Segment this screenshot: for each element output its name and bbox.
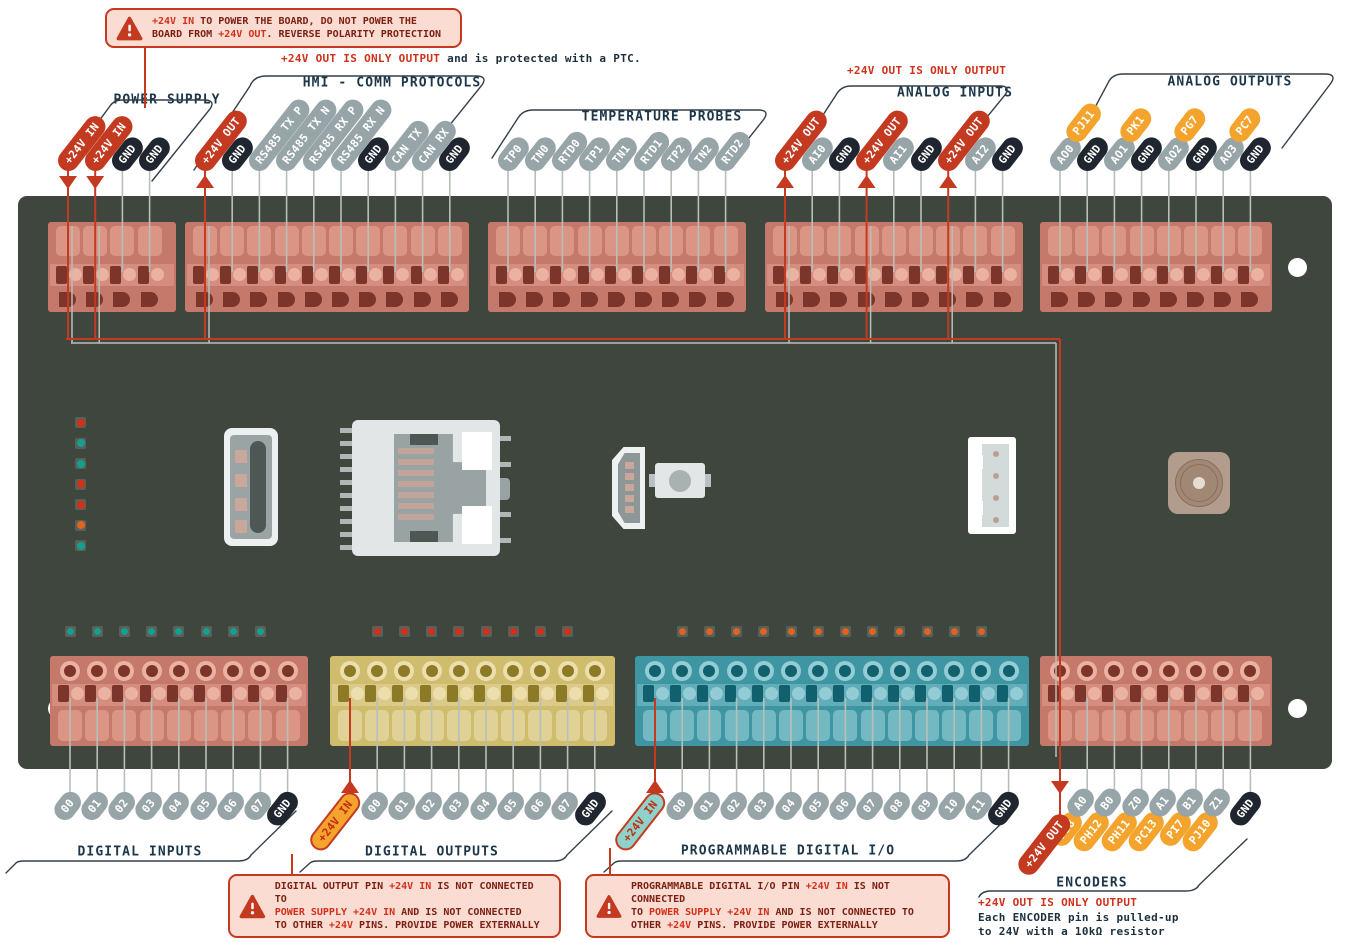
terminal-detail xyxy=(779,710,803,741)
terminal-detail xyxy=(138,226,162,256)
terminal-detail xyxy=(83,266,94,284)
terminal-detail xyxy=(338,685,349,702)
terminal-detail xyxy=(1143,268,1156,281)
terminal-detail xyxy=(112,710,136,741)
group-title: ENCODERS xyxy=(1056,876,1127,891)
terminal-detail xyxy=(969,710,993,741)
pin-label-text: 01 xyxy=(689,787,724,823)
pin-label: 04 xyxy=(159,787,194,823)
io-led xyxy=(453,626,464,637)
terminal-detail xyxy=(1130,226,1154,256)
io-led xyxy=(372,626,383,637)
terminal-detail xyxy=(963,226,987,256)
terminal-detail xyxy=(578,226,602,256)
pin-label-text: 00 xyxy=(357,787,392,823)
terminal-detail xyxy=(151,268,164,281)
io-led xyxy=(562,626,573,637)
terminal-detail xyxy=(501,710,525,741)
terminal-detail xyxy=(496,226,520,256)
terminal-detail xyxy=(991,266,1002,284)
terminal-detail xyxy=(936,226,960,256)
led-dot xyxy=(77,521,85,529)
io-led xyxy=(535,626,546,637)
pin-label: +24V IN xyxy=(611,787,670,854)
terminal-detail xyxy=(420,710,444,741)
terminal-detail xyxy=(1187,292,1204,307)
terminal-detail xyxy=(738,687,751,700)
terminal-detail xyxy=(997,710,1021,741)
terminal-block xyxy=(48,222,176,312)
terminal-detail xyxy=(447,685,458,702)
terminal-detail xyxy=(438,266,449,284)
terminal-detail xyxy=(618,268,631,281)
group-title: TEMPERATURE PROBES xyxy=(582,110,743,125)
terminal-detail xyxy=(1048,266,1059,284)
text-segment: BOARD FROM xyxy=(152,29,218,40)
text-segment: PINS. PROVIDE POWER EXTERNALLY xyxy=(353,920,540,931)
terminal-detail xyxy=(200,665,212,677)
text-segment: PINS. PROVIDE POWER EXTERNALLY xyxy=(691,920,878,931)
led-dot xyxy=(842,628,849,635)
terminal-detail xyxy=(64,665,76,677)
terminal-detail xyxy=(939,292,956,307)
terminal-detail xyxy=(329,266,340,284)
led-dot xyxy=(679,628,686,635)
text-segment: TO xyxy=(631,907,649,918)
status-led xyxy=(75,417,86,428)
pin-label: 05 xyxy=(493,787,528,823)
text-segment: OTHER xyxy=(631,920,667,931)
terminal-detail xyxy=(966,292,983,307)
pin-label: 01 xyxy=(384,787,419,823)
terminal-detail xyxy=(868,268,881,281)
terminal-detail xyxy=(1170,268,1183,281)
terminal-detail xyxy=(922,268,935,281)
terminal-detail xyxy=(731,665,743,677)
terminal-detail xyxy=(569,687,582,700)
terminal-detail xyxy=(474,685,485,702)
status-led xyxy=(75,540,86,551)
ethernet-leads xyxy=(340,428,352,548)
power-flow-arrow-up xyxy=(776,175,794,188)
led-dot xyxy=(230,628,237,635)
terminal-detail xyxy=(193,226,217,256)
pin-label: 01 xyxy=(689,787,724,823)
terminal-detail xyxy=(1075,710,1099,741)
terminal-detail xyxy=(365,685,376,702)
terminal-detail xyxy=(792,687,805,700)
group-title: DIGITAL OUTPUTS xyxy=(365,845,499,860)
terminal-detail xyxy=(894,665,906,677)
terminal-detail xyxy=(909,266,920,284)
pin-label: 00 xyxy=(357,787,392,823)
io-led xyxy=(65,626,76,637)
terminal-block xyxy=(50,656,308,746)
terminal-detail xyxy=(1102,226,1126,256)
pin-label: +24V IN xyxy=(306,787,365,854)
terminal-detail xyxy=(56,226,80,256)
terminal-block xyxy=(330,656,615,746)
terminal-detail xyxy=(113,292,130,307)
led-dot xyxy=(67,628,74,635)
terminal-block xyxy=(1040,222,1272,312)
terminal-detail xyxy=(59,292,76,307)
terminal-detail xyxy=(727,268,740,281)
text-segment: and is protected with a PTC. xyxy=(440,52,641,65)
led-dot xyxy=(203,628,210,635)
pin-label-text: 05 xyxy=(798,787,833,823)
terminal-detail xyxy=(71,687,84,700)
io-led xyxy=(399,626,410,637)
terminal-detail xyxy=(921,665,933,677)
terminal-detail xyxy=(725,685,736,702)
text-segment: TO POWER THE BOARD, DO NOT POWER THE xyxy=(194,16,417,27)
group-title: PROGRAMMABLE DIGITAL I/O xyxy=(681,844,895,859)
terminal-detail xyxy=(1211,266,1222,284)
terminal-detail xyxy=(1010,687,1023,700)
terminal-detail xyxy=(855,266,866,284)
terminal-detail xyxy=(1130,710,1154,741)
terminal-detail xyxy=(861,685,872,702)
pin-label-text: 03 xyxy=(744,787,779,823)
pin-label: 03 xyxy=(439,787,474,823)
terminal-detail xyxy=(1157,266,1168,284)
io-led xyxy=(481,626,492,637)
terminal-detail xyxy=(581,292,598,307)
terminal-detail xyxy=(1184,685,1195,702)
led-dot xyxy=(510,628,517,635)
terminal-detail xyxy=(276,710,300,741)
pin-label-text: 06 xyxy=(520,787,555,823)
screw-hole xyxy=(1288,699,1307,718)
terminal-detail xyxy=(411,226,435,256)
terminal-detail xyxy=(58,685,69,702)
warning-text: DIGITAL OUTPUT PIN +24V IN IS NOT CONNEC… xyxy=(275,880,549,932)
terminal-detail xyxy=(167,710,191,741)
terminal-detail xyxy=(833,710,857,741)
led-dot xyxy=(77,460,85,468)
io-led xyxy=(119,626,130,637)
status-led xyxy=(75,479,86,490)
terminal-detail xyxy=(556,710,580,741)
terminal-detail xyxy=(528,710,552,741)
terminal-detail xyxy=(153,687,166,700)
terminal-detail xyxy=(656,687,669,700)
text-segment: +24V OUT xyxy=(218,29,266,40)
terminal-detail xyxy=(282,665,294,677)
pin-label-text: 04 xyxy=(771,787,806,823)
terminal-detail xyxy=(1051,292,1068,307)
terminal-detail xyxy=(499,292,516,307)
pin-label-text: +24V IN xyxy=(611,787,670,854)
terminal-detail xyxy=(550,226,574,256)
terminal-detail xyxy=(605,266,616,284)
pin-label-text: 03 xyxy=(131,787,166,823)
terminal-detail xyxy=(338,710,362,741)
terminal-detail xyxy=(1078,292,1095,307)
terminal-detail xyxy=(1048,685,1059,702)
terminal-detail xyxy=(643,685,654,702)
terminal-detail xyxy=(247,226,271,256)
led-dot xyxy=(175,628,182,635)
terminal-detail xyxy=(414,292,431,307)
terminal-detail xyxy=(1061,687,1074,700)
text-segment: AND IS NOT CONNECTED TO xyxy=(769,907,914,918)
terminal-detail xyxy=(1211,710,1235,741)
power-flow-arrow-up xyxy=(858,175,876,188)
usb-a-port xyxy=(224,428,278,546)
terminal-detail xyxy=(686,226,710,256)
text-segment: +24V IN xyxy=(152,16,194,27)
text-segment: POWER SUPPLY +24V IN xyxy=(275,907,395,918)
pin-label-text: 00 xyxy=(662,787,697,823)
pin-label-text: 02 xyxy=(411,787,446,823)
terminal-detail xyxy=(773,226,797,256)
terminal-detail xyxy=(1102,710,1126,741)
reset-button xyxy=(655,463,705,498)
led-dot xyxy=(77,419,85,427)
led-dot xyxy=(951,628,958,635)
terminal-detail xyxy=(1163,665,1175,677)
terminal-detail xyxy=(1102,266,1113,284)
terminal-detail xyxy=(426,665,438,677)
terminal-detail xyxy=(383,226,407,256)
terminal-detail xyxy=(356,226,380,256)
led-dot xyxy=(564,628,571,635)
terminal-detail xyxy=(447,710,471,741)
terminal-detail xyxy=(112,685,123,702)
pin-label-text: 10 xyxy=(934,787,969,823)
terminal-detail xyxy=(1197,268,1210,281)
group-title: ANALOG INPUTS xyxy=(897,86,1013,101)
terminal-detail xyxy=(509,268,522,281)
io-led xyxy=(228,626,239,637)
terminal-detail xyxy=(110,226,134,256)
terminal-detail xyxy=(275,226,299,256)
led-dot xyxy=(77,501,85,509)
pin-label-text: 06 xyxy=(825,787,860,823)
pin-label-text: 08 xyxy=(880,787,915,823)
terminal-detail xyxy=(220,266,231,284)
pin-label: 01 xyxy=(77,787,112,823)
led-dot xyxy=(706,628,713,635)
terminal-detail xyxy=(342,268,355,281)
io-led xyxy=(731,626,742,637)
text-segment: . REVERSE POLARITY PROTECTION xyxy=(266,29,441,40)
warning-digital-outputs: DIGITAL OUTPUT PIN +24V IN IS NOT CONNEC… xyxy=(228,874,561,938)
io-led xyxy=(786,626,797,637)
antenna-connector xyxy=(1168,452,1230,514)
terminal-detail xyxy=(411,266,422,284)
pin-label-text: 01 xyxy=(77,787,112,823)
group-title: POWER SUPPLY xyxy=(113,93,220,108)
terminal-detail xyxy=(424,268,437,281)
terminal-detail xyxy=(714,226,738,256)
terminal-detail xyxy=(1238,710,1262,741)
pin-label: 05 xyxy=(798,787,833,823)
terminal-detail xyxy=(1048,710,1072,741)
terminal-detail xyxy=(289,687,302,700)
led-dot xyxy=(483,628,490,635)
pin-label-text: 04 xyxy=(466,787,501,823)
led-dot xyxy=(77,439,85,447)
power-flow-arrow-up xyxy=(939,175,957,188)
warning-icon xyxy=(596,894,622,919)
terminal-detail xyxy=(635,292,652,307)
terminal-detail xyxy=(523,266,534,284)
pin-label: 03 xyxy=(131,787,166,823)
terminal-detail xyxy=(1214,292,1231,307)
terminal-detail xyxy=(1184,226,1208,256)
terminal-detail xyxy=(833,685,844,702)
terminal-detail xyxy=(221,710,245,741)
terminal-detail xyxy=(193,266,204,284)
terminal-detail xyxy=(882,266,893,284)
terminal-detail xyxy=(553,292,570,307)
terminal-detail xyxy=(1190,665,1202,677)
terminal-detail xyxy=(803,292,820,307)
terminal-detail xyxy=(451,268,464,281)
terminal-detail xyxy=(773,266,784,284)
terminal-detail xyxy=(1238,266,1249,284)
io-led xyxy=(146,626,157,637)
group-title: HMI - COMM PROTOCOLS xyxy=(303,76,482,91)
io-led xyxy=(758,626,769,637)
status-led xyxy=(75,520,86,531)
terminal-detail xyxy=(725,710,749,741)
terminal-detail xyxy=(138,266,149,284)
pin-label: 10 xyxy=(934,787,969,823)
text-segment: +24V OUT IS ONLY OUTPUT xyxy=(978,896,1137,909)
terminal-detail xyxy=(140,685,151,702)
terminal-detail xyxy=(591,268,604,281)
terminal-detail xyxy=(936,266,947,284)
warning-text: +24V IN TO POWER THE BOARD, DO NOT POWER… xyxy=(152,15,441,41)
terminal-detail xyxy=(1211,685,1222,702)
io-led xyxy=(949,626,960,637)
terminal-detail xyxy=(85,685,96,702)
power-flow-arrow-down xyxy=(59,176,77,189)
terminal-detail xyxy=(247,266,258,284)
power-flow-arrow-up xyxy=(196,175,214,188)
terminal-detail xyxy=(888,685,899,702)
terminal-detail xyxy=(942,685,953,702)
terminal-detail xyxy=(58,710,82,741)
terminal-detail xyxy=(1136,665,1148,677)
terminal-detail xyxy=(1130,266,1141,284)
terminal-detail xyxy=(288,268,301,281)
pin-label-text: GND xyxy=(906,133,945,175)
terminal-detail xyxy=(276,685,287,702)
terminal-detail xyxy=(173,665,185,677)
pin-label: 00 xyxy=(50,787,85,823)
terminal-detail xyxy=(928,687,941,700)
terminal-detail xyxy=(344,665,356,677)
terminal-detail xyxy=(302,266,313,284)
terminal-detail xyxy=(800,226,824,256)
terminal-detail xyxy=(969,685,980,702)
terminal-detail xyxy=(997,685,1008,702)
screw-hole xyxy=(1288,258,1307,277)
text-segment: +24V IN xyxy=(806,881,848,892)
terminal-detail xyxy=(528,685,539,702)
warning-icon xyxy=(116,16,143,41)
terminal-detail xyxy=(942,710,966,741)
terminal-detail xyxy=(632,266,643,284)
io-led xyxy=(922,626,933,637)
warning-programmable-io: PROGRAMMABLE DIGITAL I/O PIN +24V IN IS … xyxy=(585,874,950,938)
pin-label-text: 05 xyxy=(186,787,221,823)
terminal-detail xyxy=(589,665,601,677)
power-flow-arrow-down xyxy=(86,176,104,189)
led-dot xyxy=(77,542,85,550)
terminal-detail xyxy=(351,687,364,700)
terminal-detail xyxy=(383,266,394,284)
terminal-detail xyxy=(69,268,82,281)
terminal-detail xyxy=(912,292,929,307)
terminal-detail xyxy=(221,685,232,702)
io-led xyxy=(508,626,519,637)
terminal-detail xyxy=(752,685,763,702)
terminal-detail xyxy=(453,665,465,677)
terminal-detail xyxy=(874,687,887,700)
terminal-detail xyxy=(146,665,158,677)
pin-label: TP0 xyxy=(493,133,532,175)
status-led xyxy=(75,458,86,469)
terminal-detail xyxy=(714,266,725,284)
terminal-detail xyxy=(1048,226,1072,256)
terminal-detail xyxy=(861,710,885,741)
terminal-detail xyxy=(550,266,561,284)
status-led xyxy=(75,499,86,510)
terminal-block xyxy=(635,656,1029,746)
led-dot xyxy=(869,628,876,635)
terminal-detail xyxy=(697,685,708,702)
ethernet-port xyxy=(352,420,500,556)
jst-connector xyxy=(968,437,1016,534)
led-dot xyxy=(94,628,101,635)
terminal-detail xyxy=(752,710,776,741)
terminal-detail xyxy=(220,226,244,256)
terminal-detail xyxy=(776,292,793,307)
terminal-detail xyxy=(56,266,67,284)
analog-output-note: +24V OUT IS ONLY OUTPUT xyxy=(847,64,1006,79)
led-dot xyxy=(733,628,740,635)
io-led xyxy=(426,626,437,637)
terminal-detail xyxy=(562,665,574,677)
pin-label-text: 01 xyxy=(384,787,419,823)
terminal-detail xyxy=(315,268,328,281)
terminal-detail xyxy=(645,268,658,281)
terminal-detail xyxy=(785,665,797,677)
terminal-detail xyxy=(501,685,512,702)
led-dot xyxy=(924,628,931,635)
io-led xyxy=(704,626,715,637)
led-dot xyxy=(121,628,128,635)
terminal-detail xyxy=(689,292,706,307)
terminal-detail xyxy=(1105,292,1122,307)
pin-label-text: 00 xyxy=(50,787,85,823)
terminal-detail xyxy=(420,685,431,702)
warning-icon xyxy=(239,894,266,919)
pin-label-text: TP0 xyxy=(493,133,532,175)
terminal-detail xyxy=(85,710,109,741)
io-led xyxy=(976,626,987,637)
led-dot xyxy=(374,628,381,635)
terminal-detail xyxy=(895,268,908,281)
io-led xyxy=(813,626,824,637)
terminal-detail xyxy=(392,685,403,702)
